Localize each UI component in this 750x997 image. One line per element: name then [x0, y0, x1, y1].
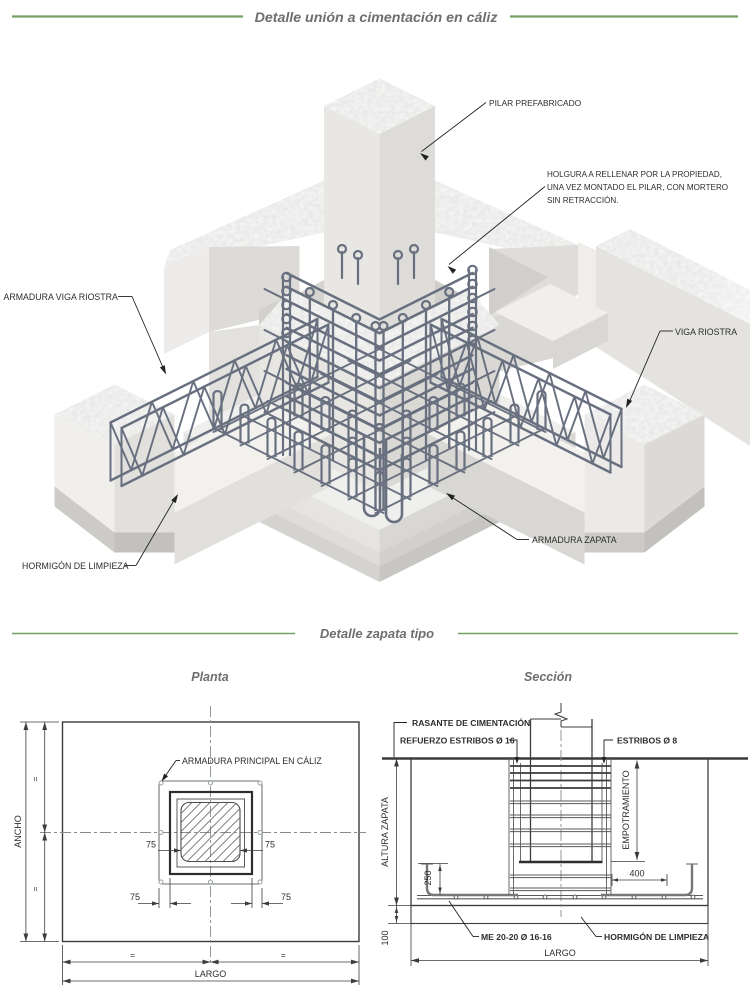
svg-text:400: 400: [629, 869, 644, 879]
svg-text:SIN RETRACCIÓN.: SIN RETRACCIÓN.: [547, 196, 619, 205]
svg-text:ARMADURA ZAPATA: ARMADURA ZAPATA: [532, 535, 617, 545]
svg-text:Detalle zapata tipo: Detalle zapata tipo: [320, 626, 434, 641]
svg-text:LARGO: LARGO: [544, 948, 576, 958]
svg-text:HOLGURA A RELLENAR POR LA PROP: HOLGURA A RELLENAR POR LA PROPIEDAD,: [547, 170, 722, 179]
svg-text:VIGA RIOSTRA: VIGA RIOSTRA: [675, 327, 737, 337]
svg-text:ALTURA ZAPATA: ALTURA ZAPATA: [380, 797, 390, 867]
svg-text:75: 75: [146, 840, 156, 850]
svg-text:ARMADURA PRINCIPAL EN CÁLIZ: ARMADURA PRINCIPAL EN CÁLIZ: [182, 756, 322, 766]
svg-text:=: =: [281, 950, 286, 960]
svg-text:=: =: [30, 886, 40, 891]
svg-text:REFUERZO ESTRIBOS Ø 16: REFUERZO ESTRIBOS Ø 16: [400, 736, 515, 746]
svg-text:LARGO: LARGO: [195, 969, 227, 979]
svg-text:ARMADURA VIGA RIOSTRA: ARMADURA VIGA RIOSTRA: [4, 292, 119, 302]
svg-text:75: 75: [281, 892, 291, 902]
svg-text:Planta: Planta: [191, 670, 229, 684]
svg-text:Sección: Sección: [524, 670, 572, 684]
svg-text:PILAR PREFABRICADO: PILAR PREFABRICADO: [489, 98, 582, 108]
svg-text:UNA VEZ MONTADO EL PILAR, CON: UNA VEZ MONTADO EL PILAR, CON MORTERO: [547, 183, 728, 192]
svg-text:RASANTE DE CIMENTACIÓN: RASANTE DE CIMENTACIÓN: [412, 717, 530, 728]
svg-text:Detalle unión a cimentación en: Detalle unión a cimentación en cáliz: [255, 10, 498, 26]
svg-text:HORMIGÓN DE LIMPIEZA: HORMIGÓN DE LIMPIEZA: [22, 561, 129, 571]
svg-text:75: 75: [265, 840, 275, 850]
svg-text:HORMIGÓN DE LIMPIEZA: HORMIGÓN DE LIMPIEZA: [604, 931, 709, 942]
svg-text:=: =: [30, 776, 40, 781]
svg-text:100: 100: [380, 930, 390, 945]
svg-text:ME 20-20 Ø 16-16: ME 20-20 Ø 16-16: [481, 932, 552, 942]
svg-text:EMPOTRAMIENTO: EMPOTRAMIENTO: [621, 770, 631, 849]
svg-text:250: 250: [423, 870, 433, 885]
svg-text:ANCHO: ANCHO: [13, 815, 23, 848]
svg-text:ESTRIBOS Ø 8: ESTRIBOS Ø 8: [617, 736, 677, 746]
svg-text:=: =: [130, 950, 135, 960]
svg-text:75: 75: [130, 892, 140, 902]
